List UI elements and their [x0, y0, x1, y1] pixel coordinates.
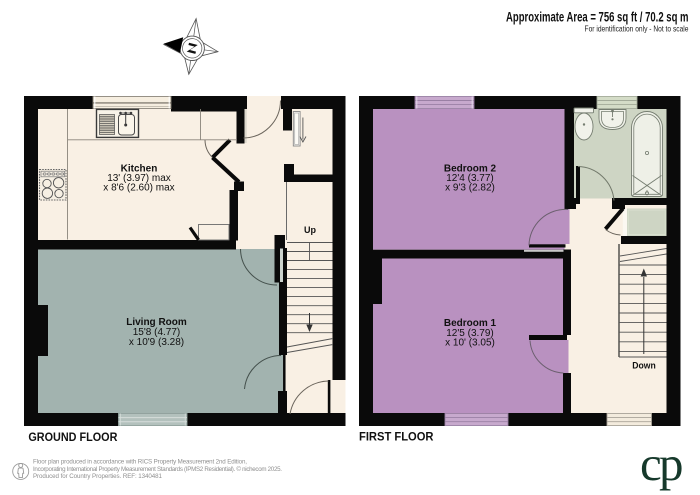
svg-text:Incorporating International Pr: Incorporating International Property Mea… [33, 466, 282, 473]
svg-text:x 8'6 (2.60) max: x 8'6 (2.60) max [103, 183, 174, 194]
svg-text:Up: Up [304, 225, 316, 235]
svg-text:Produced for Country Propertie: Produced for Country Properties. REF: 13… [33, 473, 163, 480]
svg-text:x 9'3 (2.82): x 9'3 (2.82) [445, 183, 495, 194]
svg-text:Floor plan produced in accorda: Floor plan produced in accordance with R… [33, 459, 247, 466]
svg-text:cp: cp [640, 436, 682, 491]
svg-text:FIRST FLOOR: FIRST FLOOR [359, 430, 434, 444]
svg-text:GROUND FLOOR: GROUND FLOOR [28, 430, 117, 444]
svg-text:Down: Down [632, 361, 656, 371]
svg-text:x 10'9 (3.28): x 10'9 (3.28) [129, 337, 184, 348]
svg-text:Approximate Area = 756 sq ft /: Approximate Area = 756 sq ft / 70.2 sq m [506, 10, 689, 25]
svg-text:x 10' (3.05): x 10' (3.05) [445, 338, 495, 349]
svg-text:For identification only - Not: For identification only - Not to scale [585, 24, 689, 34]
